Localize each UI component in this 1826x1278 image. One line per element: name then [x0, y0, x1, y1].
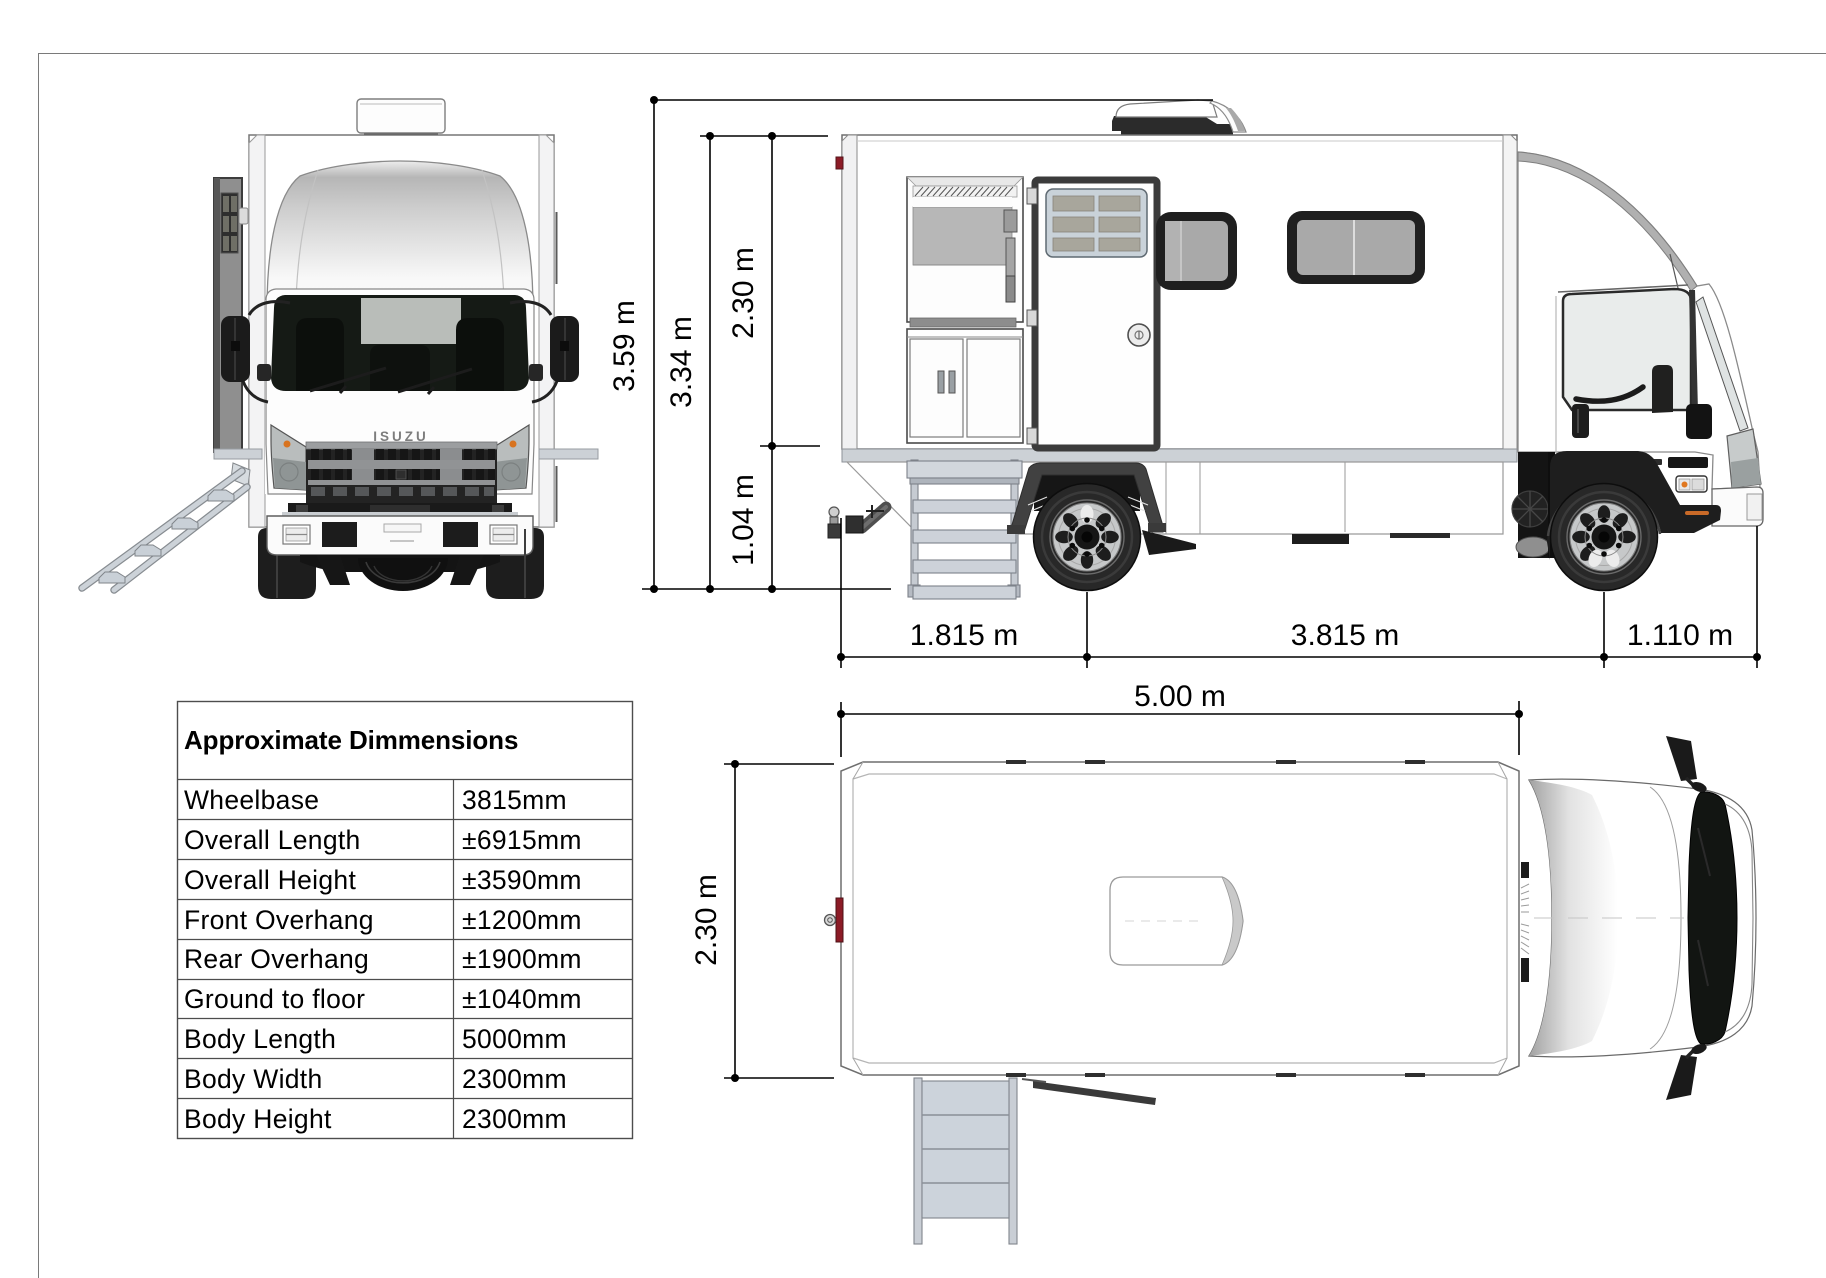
svg-text:Overall Height: Overall Height [184, 865, 356, 895]
svg-text:Front Overhang: Front Overhang [184, 905, 374, 935]
svg-text:±3590mm: ±3590mm [462, 865, 582, 895]
svg-text:Rear Overhang: Rear Overhang [184, 944, 369, 974]
svg-text:5000mm: 5000mm [462, 1024, 567, 1054]
svg-text:Wheelbase: Wheelbase [184, 785, 319, 815]
svg-text:1.110 m: 1.110 m [1627, 619, 1733, 652]
svg-text:±1200mm: ±1200mm [462, 905, 582, 935]
svg-text:1.815 m: 1.815 m [910, 619, 1018, 652]
svg-text:Body Width: Body Width [184, 1064, 323, 1094]
svg-text:3.59 m: 3.59 m [608, 300, 641, 392]
svg-text:2.30 m: 2.30 m [727, 247, 760, 339]
svg-text:±1900mm: ±1900mm [462, 944, 582, 974]
svg-text:3.34 m: 3.34 m [665, 316, 698, 408]
svg-text:2300mm: 2300mm [462, 1064, 567, 1094]
svg-text:Body Length: Body Length [184, 1024, 336, 1054]
svg-text:5.00 m: 5.00 m [1134, 680, 1226, 713]
svg-text:Approximate Dimmensions: Approximate Dimmensions [184, 725, 518, 755]
svg-text:Body Height: Body Height [184, 1104, 332, 1134]
svg-text:2300mm: 2300mm [462, 1104, 567, 1134]
svg-text:±6915mm: ±6915mm [462, 825, 582, 855]
svg-text:±1040mm: ±1040mm [462, 984, 582, 1014]
svg-text:Overall Length: Overall Length [184, 825, 361, 855]
svg-text:3815mm: 3815mm [462, 785, 567, 815]
svg-text:2.30 m: 2.30 m [690, 874, 723, 966]
svg-text:3.815 m: 3.815 m [1291, 619, 1399, 652]
svg-text:Ground to floor: Ground to floor [184, 984, 365, 1014]
svg-text:1.04 m: 1.04 m [727, 474, 760, 566]
